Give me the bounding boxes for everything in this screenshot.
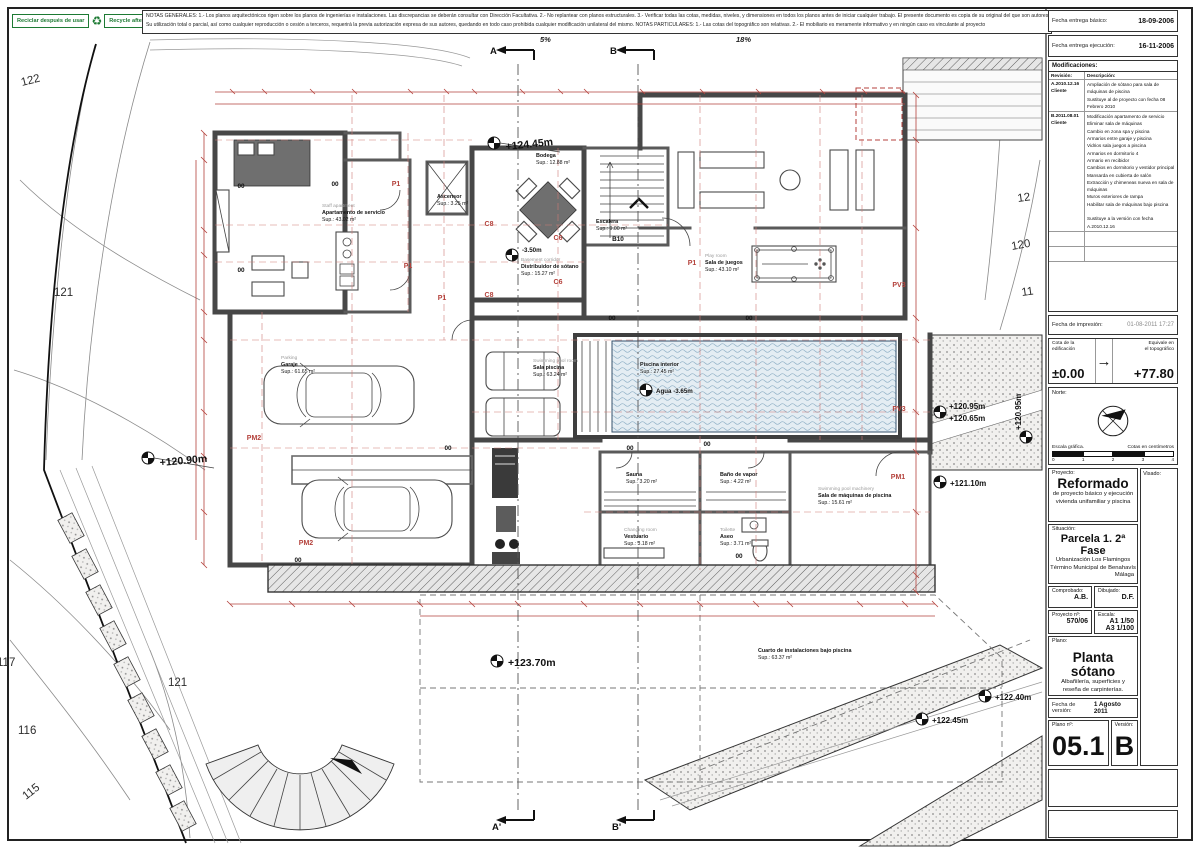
sofa xyxy=(678,152,694,208)
section-a2-label: A' xyxy=(492,822,501,833)
section-a-label: A xyxy=(490,46,497,57)
right-ramp-strip: +120.95m xyxy=(930,335,1042,470)
location-subtitle: Málaga xyxy=(1049,572,1137,579)
modifications-title: Modificaciones: xyxy=(1049,61,1177,72)
building-level-value: ±0.00 xyxy=(1052,366,1092,381)
ramp-bands xyxy=(645,640,1042,846)
room-label-es: Garaje xyxy=(281,362,298,368)
room-label-sup: Sup.: 3.71 m² xyxy=(720,541,751,547)
field-value: 570/06 xyxy=(1052,618,1088,625)
contour-label: 122 xyxy=(20,73,42,89)
field-value: 1 Agosto 2011 xyxy=(1094,701,1134,715)
door-code: P1 xyxy=(404,263,413,270)
contour-label: 117 xyxy=(0,657,15,669)
graphic-scale-label: Escala gráfica. xyxy=(1052,445,1084,450)
level-label: +120.65m xyxy=(949,414,985,423)
room-label-es: Sauna xyxy=(626,472,643,478)
field-label: Fecha de versión: xyxy=(1052,702,1094,714)
room-label-es: Escalera xyxy=(596,219,619,225)
room-label-sup: Sup.: 43.02 m² xyxy=(322,217,356,223)
driveway-lines xyxy=(150,39,470,66)
topo-level-value: +77.80 xyxy=(1116,366,1174,381)
room-label-en: Parking xyxy=(281,355,298,361)
window-code: C8 xyxy=(485,221,494,228)
revision-header: Revisión: xyxy=(1049,72,1085,80)
empty-box xyxy=(1048,769,1178,807)
window-code: C8 xyxy=(485,292,494,299)
round-table xyxy=(780,170,800,190)
level-label: +122.40m xyxy=(995,693,1031,702)
room-label-sup: Sup.: 15.27 m² xyxy=(521,271,555,277)
room-label-sup: Sup.: 61.65 m² xyxy=(281,369,315,375)
sheet-title-panel: Plano: Planta sótano Albañilería, superf… xyxy=(1048,636,1138,696)
room-label-en: Basement corridor xyxy=(521,257,561,263)
level-label: +121.10m xyxy=(950,479,986,488)
notes-line-2: Su utilización total o parcial, así como… xyxy=(146,21,1048,30)
empty-box xyxy=(1048,810,1178,838)
project-subtitle: vivienda unifamiliar y piscina xyxy=(1049,499,1137,507)
room-label-sup: Sup.: 43.10 m² xyxy=(705,267,739,273)
revision-a-id: A.2010.12.16 Cliente xyxy=(1049,80,1085,112)
level-label: +123.70m xyxy=(508,657,556,669)
room-label-es: Cuarto de instalaciones bajo piscina xyxy=(758,648,852,654)
fan-pavers xyxy=(206,745,394,830)
stair-code: B10 xyxy=(612,236,624,243)
bench xyxy=(604,548,664,558)
wall-code: 00 xyxy=(703,441,711,448)
room-label-sup: Sup.: 4.22 m² xyxy=(720,479,751,485)
room-label-es: Distribuidor de sótano xyxy=(521,264,579,270)
sofa xyxy=(856,150,874,210)
revision-b-desc: Modificación apartamento de servicio Eli… xyxy=(1085,112,1177,232)
wall-code: 00 xyxy=(626,445,634,452)
slope-label: 18% xyxy=(736,35,751,44)
contour-label: 121 xyxy=(168,677,187,689)
room-label-en: Swimming pool room xyxy=(533,358,578,364)
sink xyxy=(742,518,766,532)
room-label-sup: Sup.: 9.00 m² xyxy=(596,226,627,232)
room-label-en: Play room xyxy=(705,253,727,259)
sofa xyxy=(830,150,848,210)
room-label-es: Sala piscina xyxy=(533,365,565,371)
drawing-sheet: 122 121 121 117 116 115 12 120 11 +120.9… xyxy=(0,0,1200,848)
location-title: Parcela 1. 2ª Fase xyxy=(1049,533,1137,557)
field-value: 01-08-2011 17:27 xyxy=(1127,322,1174,328)
revision-a-desc: Ampliación de sótano para sala de máquin… xyxy=(1085,80,1177,112)
wall-code: 00 xyxy=(237,267,245,274)
car xyxy=(302,477,452,541)
window-code: PV3 xyxy=(892,406,905,413)
room-label-sup: Sup.: 3.25 m² xyxy=(437,201,468,207)
door-code: P1 xyxy=(688,260,697,267)
sheet-subtitle: reseña de carpinterías. xyxy=(1049,687,1137,695)
level-label: +120.95m xyxy=(1014,394,1023,430)
room-label-es: Apartamento de servicio xyxy=(322,210,386,216)
section-b-label: B xyxy=(610,46,617,57)
version-date: Fecha de versión: 1 Agosto 2011 xyxy=(1048,698,1138,718)
room-label-sup: Sup.: 3.20 m² xyxy=(626,479,657,485)
contour-label: 116 xyxy=(18,725,36,737)
door-code: PM2 xyxy=(247,435,262,442)
door-code: P1 xyxy=(392,181,401,188)
sofa xyxy=(252,256,284,270)
modifications-panel: Modificaciones: Revisión: Descripción: A… xyxy=(1048,60,1178,312)
revision-empty-row xyxy=(1049,247,1085,262)
units-label: Cotas en centímetros xyxy=(1128,445,1174,450)
ruler-tick: 4 xyxy=(1171,457,1174,462)
wall-code: 00 xyxy=(608,315,616,322)
wall-code: 00 xyxy=(745,315,753,322)
contour-label: 115 xyxy=(20,782,42,803)
drawn-by: Dibujado: D.F. xyxy=(1094,586,1138,608)
revision-b-id: B.2011.08.01 Cliente xyxy=(1049,112,1085,232)
floor-plan-svg: 122 121 121 117 116 115 12 120 11 +120.9… xyxy=(0,0,1200,848)
location-panel: Situación: Parcela 1. 2ª Fase Urbanizaci… xyxy=(1048,524,1138,584)
ruler-tick: 0 xyxy=(1052,457,1082,462)
title-block: Fecha entrega básico: 18-09-2006 Fecha e… xyxy=(1048,10,1178,838)
location-subtitle: Urbanización Los Flamingos xyxy=(1049,557,1137,565)
sheet-subtitle: Albañilería, superficies y xyxy=(1049,679,1137,687)
door-code: PM1 xyxy=(891,474,906,481)
print-date: Fecha de impresión: 01-08-2011 17:27 xyxy=(1048,315,1178,335)
window-code: C6 xyxy=(554,235,563,242)
wall-code: 00 xyxy=(237,183,245,190)
checked-by: Comprobado: A.B. xyxy=(1048,586,1092,608)
delivery-date-execution: Fecha entrega ejecución: 16-11-2006 xyxy=(1048,35,1178,57)
approval-stamp-box: Visado: xyxy=(1140,468,1178,766)
delivery-date-basic: Fecha entrega básico: 18-09-2006 xyxy=(1048,10,1178,32)
sheet-title: Planta sótano xyxy=(1049,651,1137,679)
room-label-es: Ascensor xyxy=(437,194,462,200)
window-code: C6 xyxy=(554,279,563,286)
room-label-sup: Sup.: 63.24 m² xyxy=(533,372,567,378)
room-label-sup: Sup.: 63.37 m² xyxy=(758,655,792,661)
retaining-wall-stones xyxy=(58,513,196,831)
field-value: A1 1/50 A3 1/100 xyxy=(1098,618,1134,632)
section-b2-label: B' xyxy=(612,822,621,833)
water-level-label: Agua -3.65m xyxy=(656,388,693,395)
side-table xyxy=(292,262,308,278)
north-panel: Norte: Escala gráfica. Cotas en centímet… xyxy=(1048,387,1178,465)
contour-label: 121 xyxy=(54,287,73,299)
general-notes: NOTAS GENERALES: 1.- Los planos arquitec… xyxy=(142,10,1052,34)
room-label-es: Sala de juegos xyxy=(705,260,743,266)
kitchenette xyxy=(336,232,358,290)
recycle-labels: Reciclar después de usar ♻ Recycle after… xyxy=(12,12,160,30)
level-label: -3.50m xyxy=(522,247,542,254)
ruler-tick: 3 xyxy=(1142,457,1172,462)
contour-label: 11 xyxy=(1021,285,1035,299)
sofa xyxy=(700,192,764,208)
room-label-sup: Sup.: 27.45 m² xyxy=(640,369,674,375)
field-value: 16-11-2006 xyxy=(1139,43,1174,50)
recycle-label-es: Reciclar después de usar xyxy=(12,14,89,28)
field-value: A.B. xyxy=(1052,594,1088,601)
field-label: Fecha entrega básico: xyxy=(1052,18,1107,24)
project-number: Proyecto nº: 570/06 xyxy=(1048,610,1092,634)
level-label: +120.95m xyxy=(949,402,985,411)
recycle-icon: ♻ xyxy=(91,15,102,27)
dining-table xyxy=(516,178,580,242)
contour-label: 12 xyxy=(1017,191,1031,205)
room-label-es: Aseo xyxy=(720,534,734,540)
room-label-es: Vestuario xyxy=(624,534,649,540)
building-level-label: Cota de la edificación xyxy=(1052,341,1092,352)
sheet-label: Plano: xyxy=(1049,637,1137,645)
ruler-tick: 2 xyxy=(1112,457,1142,462)
room-label-en: Staff apartment xyxy=(322,203,355,209)
project-panel: Proyecto: Reformado de proyecto básico y… xyxy=(1048,468,1138,522)
field-label: Fecha de impresión: xyxy=(1052,322,1103,328)
north-compass-icon xyxy=(1094,402,1132,440)
wall-code: 00 xyxy=(294,557,302,564)
revision-empty-row xyxy=(1049,232,1085,247)
sheet-number: Plano nº: 05.1 xyxy=(1048,720,1109,766)
room-label-es: Baño de vapor xyxy=(720,472,758,478)
ruler-tick: 1 xyxy=(1082,457,1112,462)
room-label-sup: Sup.: 12.88 m² xyxy=(536,160,570,166)
equivalence-arrow-icon: → xyxy=(1095,339,1113,383)
top-right-strip xyxy=(856,58,1042,140)
location-subtitle: Término Municipal de Benahavís xyxy=(1049,565,1137,573)
sofa xyxy=(252,282,284,296)
field-value: 18-09-2006 xyxy=(1138,18,1174,25)
slope-label: 5% xyxy=(540,35,551,44)
spa-fixtures xyxy=(604,492,786,561)
room-label-en: Swimming pool machinery xyxy=(818,486,875,492)
notes-line-1: NOTAS GENERALES: 1.- Los planos arquitec… xyxy=(146,12,1048,21)
field-label: Fecha entrega ejecución: xyxy=(1052,43,1115,49)
field-value: D.F. xyxy=(1098,594,1134,601)
version-value: B xyxy=(1115,728,1135,764)
version-box: Versión: B xyxy=(1111,720,1139,766)
room-label-en: Changing room xyxy=(624,527,657,533)
topo-level-label: Equivale en el topográfico xyxy=(1116,341,1174,352)
project-section: Proyecto: Reformado de proyecto básico y… xyxy=(1048,468,1178,766)
approval-label: Visado: xyxy=(1143,471,1161,477)
project-subtitle: de proyecto básico y ejecución xyxy=(1049,491,1137,499)
description-header: Descripción: xyxy=(1085,72,1177,80)
wall-code: 00 xyxy=(331,181,339,188)
room-label-es: Sala de máquinas de piscina xyxy=(818,493,892,499)
room-label-es: Piscina interior xyxy=(640,362,680,368)
room-label-en: Toilette xyxy=(720,527,736,533)
elevation-panel: Cota de la edificación ±0.00 → Equivale … xyxy=(1048,338,1178,384)
door-code: PM2 xyxy=(299,540,314,547)
contour-label: 120 xyxy=(1010,238,1031,253)
sofa xyxy=(700,152,764,168)
room-label-sup: Sup.: 15.61 m² xyxy=(818,500,852,506)
gym-equipment xyxy=(492,448,520,564)
room-label-es: Bodega xyxy=(536,153,557,159)
room-label-sup: Sup.: 3.18 m² xyxy=(624,541,655,547)
scale-field: Escala: A1 1/50 A3 1/100 xyxy=(1094,610,1138,634)
project-title: Reformado xyxy=(1049,477,1137,491)
window-code: PV3 xyxy=(892,282,905,289)
level-label: +122.45m xyxy=(932,716,968,725)
sheet-number-value: 05.1 xyxy=(1052,728,1105,764)
door-code: P1 xyxy=(438,295,447,302)
billiard-table xyxy=(752,246,836,282)
location-label: Situación: xyxy=(1049,525,1137,533)
wall-code: 00 xyxy=(735,553,743,560)
wall-code: 00 xyxy=(444,445,452,452)
